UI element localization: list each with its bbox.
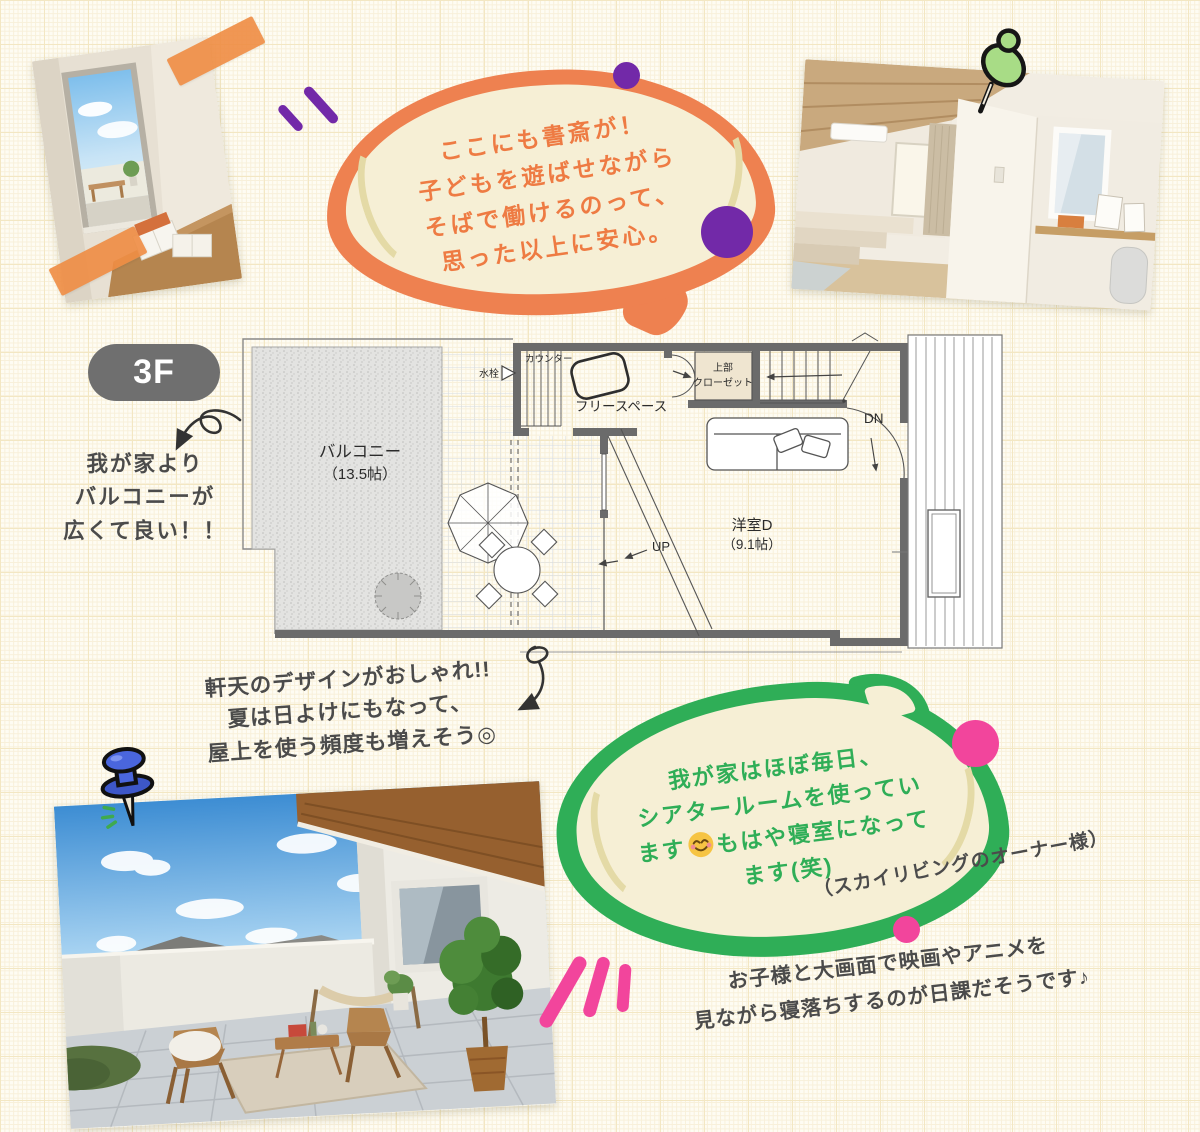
curly-arrow-icon	[492, 640, 554, 722]
plan-side-deck	[908, 335, 1002, 648]
page: ここにも書斎が！ 子どもを遊ばせながら そばで働けるのって、 思った以上に安心。	[0, 0, 1200, 1132]
green-bubble-text: 我が家はほぼ毎日、 シアタールームを使ってい ますもはや寝室になって ます(笑)	[541, 657, 1023, 982]
purple-accent-dash	[276, 103, 304, 133]
plan-sofa	[707, 418, 848, 470]
room-size-label: （9.1帖）	[722, 537, 781, 552]
up-label: UP	[652, 539, 670, 554]
note-line: 広くて良い！！	[28, 515, 262, 548]
washi-tape-top	[166, 16, 265, 86]
blue-pushpin-icon	[86, 742, 170, 840]
speech-bubble-orange: ここにも書斎が！ 子どもを遊ばせながら そばで働けるのって、 思った以上に安心。	[326, 70, 774, 315]
orange-bubble-text: ここにも書斎が！ 子どもを遊ばせながら そばで働けるのって、 思った以上に安心。	[311, 40, 789, 345]
upper-closet-box	[695, 352, 752, 400]
down-label: DN	[864, 411, 884, 426]
free-space-label: フリースペース	[575, 399, 667, 414]
smiling-face-emoji-icon	[686, 830, 716, 860]
note-line: 我が家より	[28, 448, 262, 481]
balcony-size-label: （13.5帖）	[323, 466, 397, 483]
plan-cushion	[569, 351, 631, 401]
balcony-label: バルコニー	[319, 443, 401, 461]
counter-label: カウンター	[525, 354, 573, 365]
room-label: 洋室D	[732, 517, 773, 534]
upper-closet-label-1: 上部	[713, 361, 733, 374]
floor-badge-label: 3F	[133, 353, 175, 392]
purple-dot-small	[613, 62, 640, 89]
balcony-note: 我が家より バルコニーが 広くて良い！！	[28, 448, 262, 548]
purple-dot-large	[701, 206, 753, 258]
floor-plan: バルコニー （13.5帖） 水栓 カウンター フリースペース 上部 クローゼット…	[240, 328, 1010, 663]
faucet-label: 水栓	[479, 367, 499, 380]
green-pushpin-icon	[962, 28, 1038, 116]
speech-bubble-green: 我が家はほぼ毎日、 シアタールームを使ってい ますもはや寝室になって ます(笑)	[556, 684, 1008, 956]
floor-badge-3f: 3F	[88, 344, 220, 401]
plan-bush	[375, 573, 421, 619]
pink-dot-large	[952, 720, 999, 767]
note-line: バルコニーが	[28, 481, 262, 514]
upper-closet-label-2: クローゼット	[693, 377, 753, 389]
pink-dot-small	[893, 916, 920, 943]
